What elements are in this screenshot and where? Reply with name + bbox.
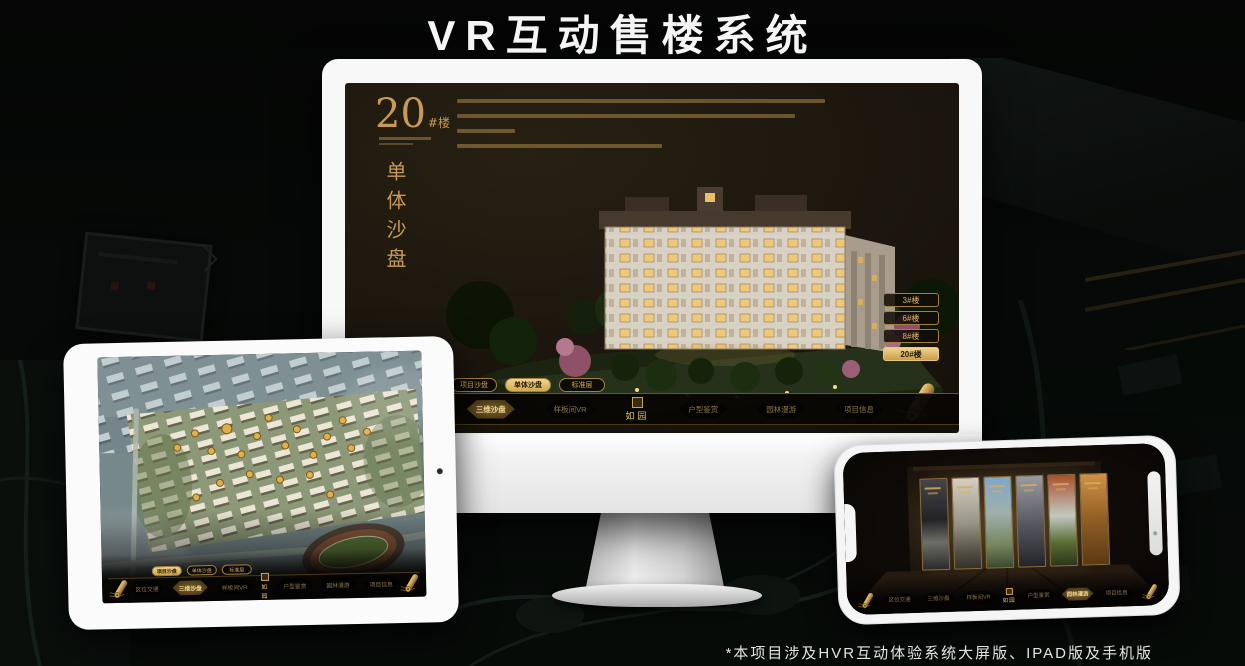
nav-item-floorplans[interactable]: 户型鉴赏 bbox=[1022, 588, 1054, 602]
floor-button-6[interactable]: 6#楼 bbox=[883, 311, 939, 325]
tablet-nav-band: 项目沙盘 单体沙盘 标准层 区位交通 三维沙盘 样板间VR 如园 户型鉴赏 bbox=[101, 549, 426, 604]
building-heading: 20#楼 bbox=[375, 93, 450, 145]
floor-button-3[interactable]: 3#楼 bbox=[883, 293, 939, 307]
scroll-icon[interactable] bbox=[1141, 582, 1160, 601]
nav-item-floorplans[interactable]: 户型鉴赏 bbox=[277, 577, 313, 593]
promo-canvas: VR互动售楼系统 20#楼 单体沙盘 bbox=[0, 0, 1245, 666]
heading-vertical-label: 单体沙盘 bbox=[381, 161, 410, 277]
gallery-panel-exterior[interactable] bbox=[983, 476, 1014, 569]
phone-bottom-nav: 区位交通 三维沙盘 样板间VR 如园 户型鉴赏 园林漫游 项目信息 bbox=[857, 582, 1159, 609]
nav-item-vr-showroom[interactable]: 样板间VR bbox=[216, 579, 254, 595]
nav-item-3d-sandbox[interactable]: 三维沙盘 bbox=[922, 591, 954, 605]
brand-seal-icon bbox=[1005, 588, 1012, 595]
brand-seal-icon bbox=[632, 397, 643, 408]
heading-english-decor bbox=[379, 137, 431, 140]
tab-project-sandbox[interactable]: 项目沙盘 bbox=[451, 378, 497, 392]
nav-item-location[interactable]: 区位交通 bbox=[883, 592, 915, 606]
heading-english-decor2 bbox=[379, 143, 413, 145]
scroll-icon[interactable] bbox=[108, 578, 130, 600]
gallery-panel-autumn[interactable] bbox=[1047, 474, 1078, 567]
phone-device: 区位交通 三维沙盘 样板间VR 如园 户型鉴赏 园林漫游 项目信息 bbox=[833, 435, 1180, 626]
scene-gallery bbox=[919, 473, 1110, 571]
phone-screen: 区位交通 三维沙盘 样板间VR 如园 户型鉴赏 园林漫游 项目信息 bbox=[843, 443, 1170, 615]
brand-name: 如园 bbox=[261, 581, 269, 599]
monitor-mode-tabs: 项目沙盘 单体沙盘 标准层 bbox=[451, 378, 605, 392]
phone-notch bbox=[844, 504, 857, 562]
page-title: VR互动售楼系统 bbox=[0, 2, 1245, 63]
floor-button-group: 3#楼 6#楼 8#楼 20#楼 bbox=[883, 293, 941, 365]
nav-item-garden-tour[interactable]: 园林漫游 bbox=[320, 577, 356, 593]
nav-item-floorplans[interactable]: 户型鉴赏 bbox=[679, 400, 727, 419]
gallery-panel-shelves[interactable] bbox=[1079, 473, 1110, 566]
scroll-icon[interactable] bbox=[857, 591, 876, 610]
nav-item-garden-tour[interactable]: 园林漫游 bbox=[1061, 587, 1093, 601]
tablet-bottom-nav: 区位交通 三维沙盘 样板间VR 如园 户型鉴赏 园林漫游 项目信息 bbox=[108, 572, 420, 600]
tablet-camera-icon bbox=[437, 468, 443, 474]
brand-seal-icon bbox=[261, 572, 269, 580]
building-unit: #楼 bbox=[428, 116, 450, 130]
brand-name: 如园 bbox=[1003, 596, 1016, 604]
nav-item-project-info[interactable]: 项目信息 bbox=[364, 576, 400, 592]
brand-name: 如园 bbox=[625, 409, 649, 422]
monitor-stand-base bbox=[552, 584, 762, 607]
brand-logo[interactable]: 如园 bbox=[625, 397, 649, 422]
tab-single-sandbox[interactable]: 单体沙盘 bbox=[505, 378, 551, 392]
gallery-panel-interior[interactable] bbox=[919, 478, 950, 571]
nav-item-vr-showroom[interactable]: 样板间VR bbox=[961, 590, 996, 604]
nav-item-project-info[interactable]: 项目信息 bbox=[835, 400, 883, 419]
floor-button-20[interactable]: 20#楼 bbox=[883, 347, 939, 361]
nav-item-project-info[interactable]: 项目信息 bbox=[1100, 586, 1132, 600]
tab-standard-floor[interactable]: 标准层 bbox=[559, 378, 605, 392]
nav-item-location[interactable]: 区位交通 bbox=[129, 581, 165, 597]
nav-item-3d-sandbox[interactable]: 三维沙盘 bbox=[467, 400, 515, 419]
bg-certificate-plaque bbox=[75, 232, 213, 343]
phone-handle-dot bbox=[1153, 531, 1157, 535]
brand-logo[interactable]: 如园 bbox=[261, 572, 270, 599]
gallery-panel-model[interactable] bbox=[951, 477, 982, 570]
scroll-icon[interactable] bbox=[399, 572, 421, 594]
gallery-panel-facade[interactable] bbox=[1015, 475, 1046, 568]
building-number: 20 bbox=[375, 91, 426, 137]
intro-text-lines bbox=[457, 99, 825, 159]
nav-item-vr-showroom[interactable]: 样板间VR bbox=[545, 400, 596, 419]
nav-item-garden-tour[interactable]: 园林漫游 bbox=[757, 400, 805, 419]
nav-item-3d-sandbox[interactable]: 三维沙盘 bbox=[172, 580, 208, 596]
phone-side-handle[interactable] bbox=[1147, 471, 1163, 555]
monitor-stand-neck bbox=[586, 505, 724, 587]
floor-button-8[interactable]: 8#楼 bbox=[883, 329, 939, 343]
tablet-device: 项目沙盘 单体沙盘 标准层 区位交通 三维沙盘 样板间VR 如园 户型鉴赏 bbox=[63, 336, 459, 630]
footnote-text: *本项目涉及HVR互动体验系统大屏版、IPAD版及手机版 bbox=[726, 642, 1153, 663]
tablet-screen: 项目沙盘 单体沙盘 标准层 区位交通 三维沙盘 样板间VR 如园 户型鉴赏 bbox=[97, 351, 426, 604]
brand-logo[interactable]: 如园 bbox=[1002, 588, 1016, 604]
